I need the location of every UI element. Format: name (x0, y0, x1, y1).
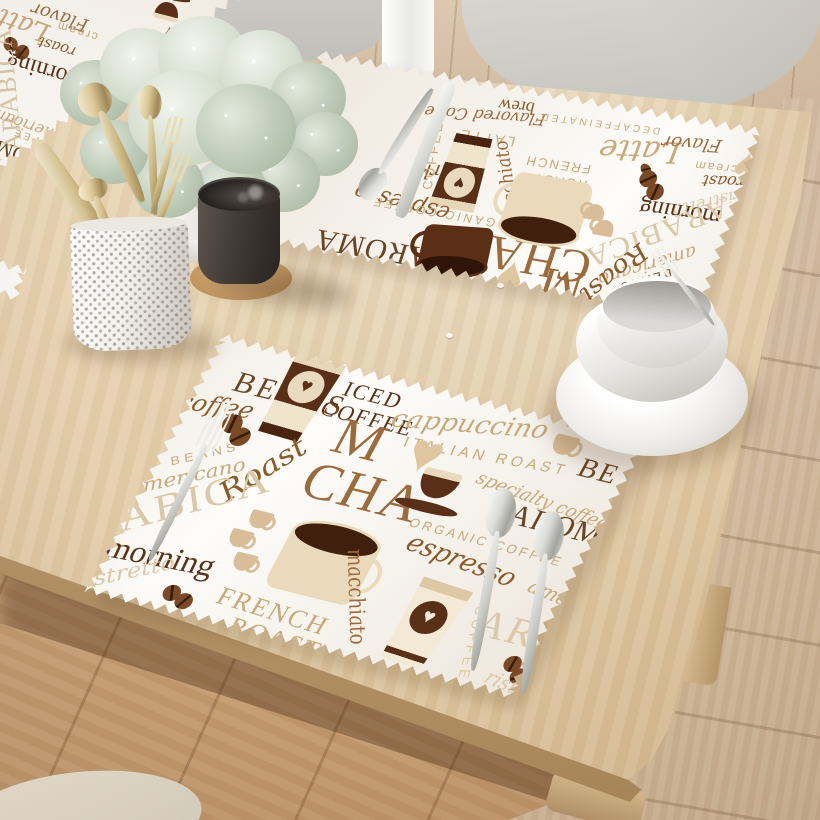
small-cup-icon (229, 551, 259, 573)
mug-dark-icon (416, 224, 494, 274)
tabletop-scene: LatteFlavorcreamroastmorningARABICAameri… (0, 0, 820, 820)
water-drop (497, 283, 504, 288)
black-cup-opening (198, 177, 280, 211)
placemat-word: Flavor (660, 132, 723, 154)
small-cup-icon (245, 509, 275, 531)
small-cup-icon (582, 203, 607, 222)
water-drop (446, 333, 453, 338)
cutlery-holder (70, 220, 192, 352)
eucalyptus-foliage (196, 84, 296, 174)
white-curtain (382, 0, 434, 78)
placemat-word: DECAFFEINATED (538, 110, 662, 135)
white-bowl-small (597, 276, 717, 368)
small-cup-icon (225, 528, 255, 550)
placemat-word: macchiato (344, 546, 369, 646)
